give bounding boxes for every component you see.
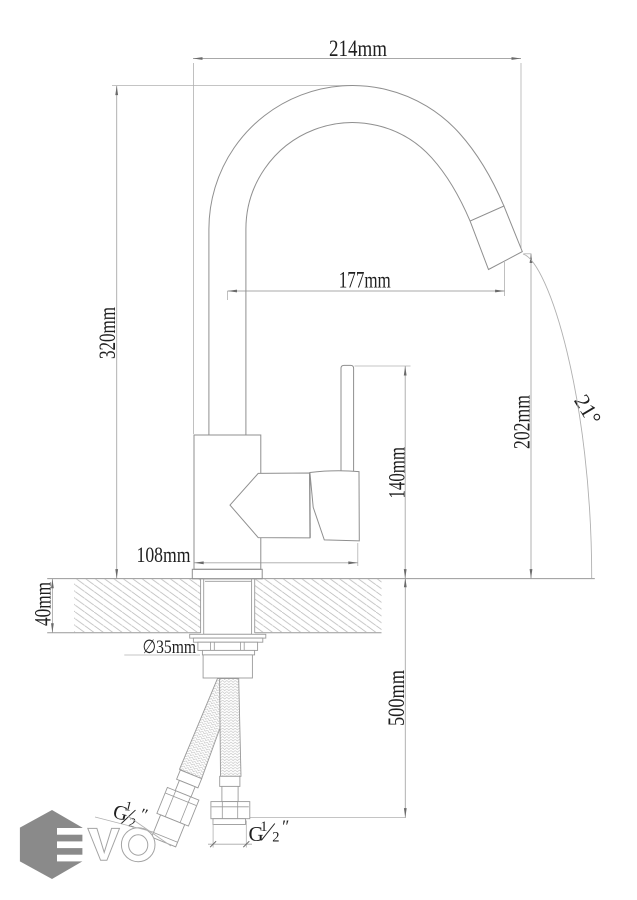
svg-text:500mm: 500mm [384, 670, 409, 726]
svg-text:21°: 21° [569, 390, 606, 429]
svg-text:″: ″ [281, 817, 289, 837]
svg-text:140mm: 140mm [385, 447, 410, 499]
svg-text:″: ″ [137, 804, 149, 824]
svg-text:214mm: 214mm [329, 36, 387, 61]
svg-text:320mm: 320mm [95, 307, 120, 359]
svg-text:2: 2 [272, 830, 279, 846]
svg-text:1: 1 [124, 798, 134, 814]
svg-text:108mm: 108mm [137, 542, 191, 567]
svg-text:40mm: 40mm [31, 582, 56, 626]
svg-text:202mm: 202mm [510, 395, 535, 449]
svg-text:1: 1 [260, 819, 267, 835]
svg-text:177mm: 177mm [339, 267, 391, 292]
